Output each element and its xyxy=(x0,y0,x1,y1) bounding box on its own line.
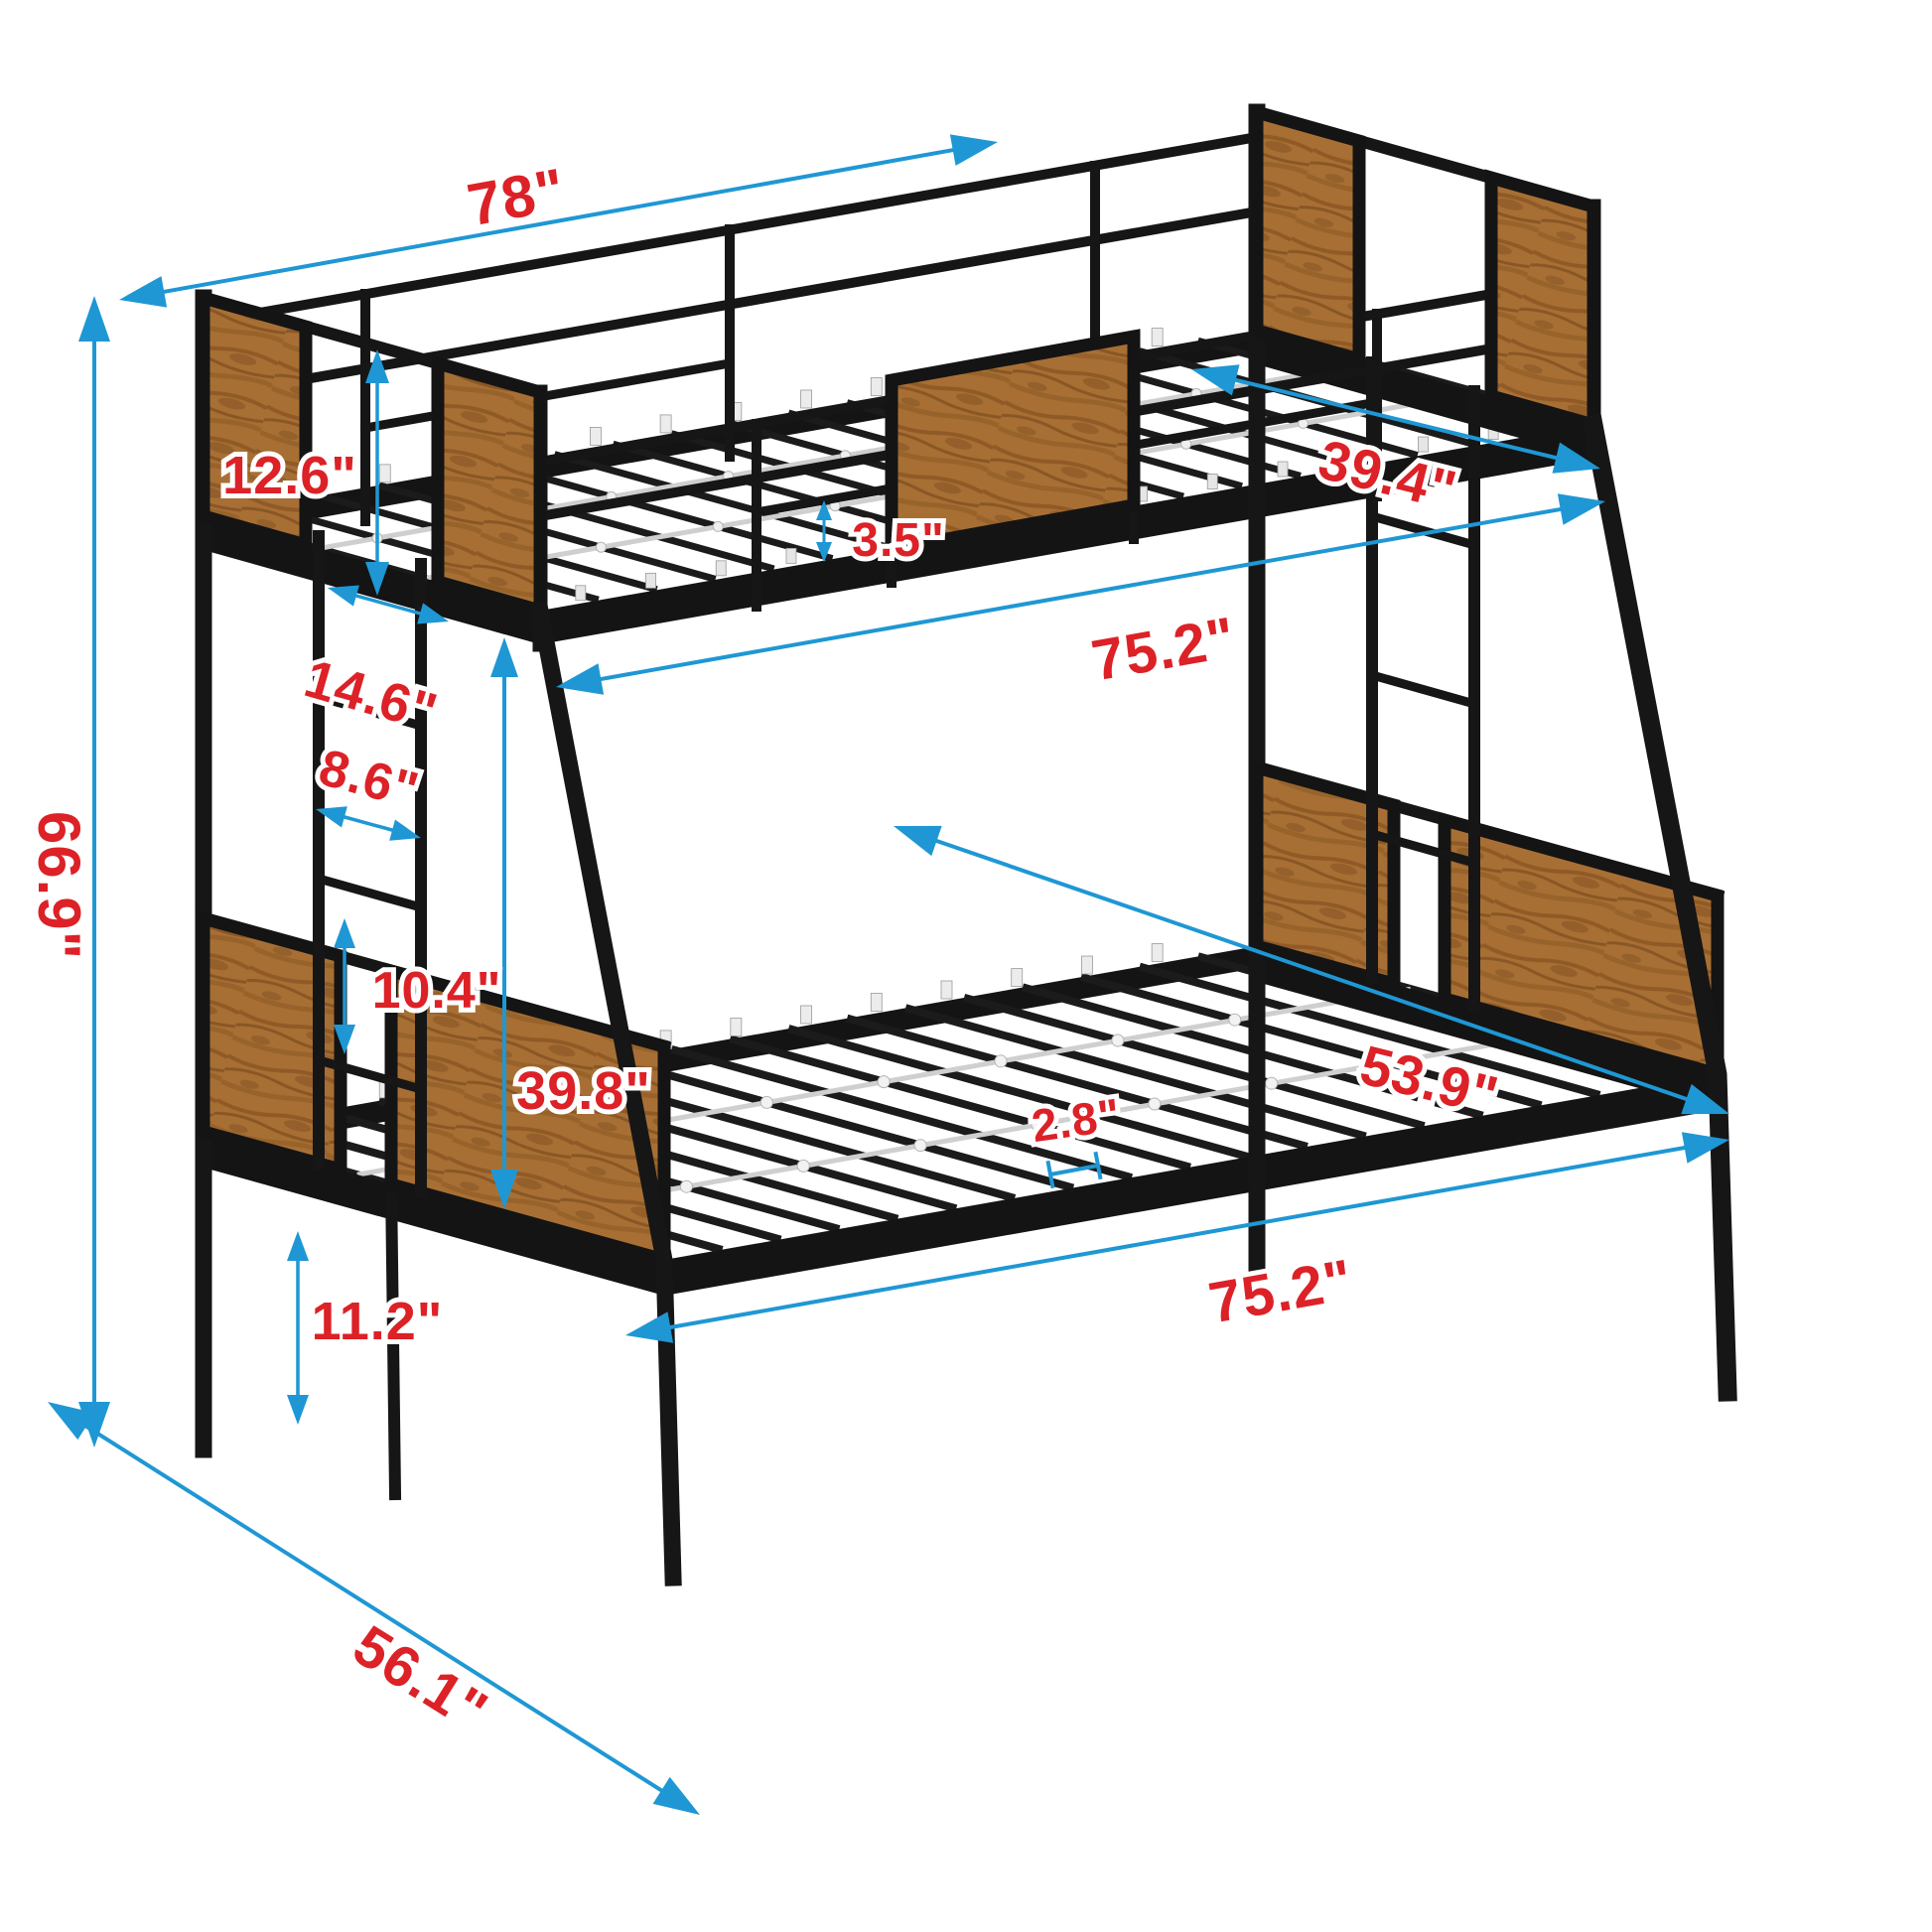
frame-member xyxy=(1278,462,1288,477)
bunk-bed-dimension-diagram: 78" 39.4" 12.6" 14.6" 8.6" 10.4" 66.9" 3… xyxy=(0,0,1932,1932)
frame-member xyxy=(680,1180,692,1192)
frame-member xyxy=(788,1029,1249,1157)
frame-member xyxy=(646,573,656,588)
frame-member xyxy=(731,1018,742,1035)
frame-member xyxy=(287,1231,309,1261)
frame-member xyxy=(1112,1035,1124,1046)
frame-member xyxy=(786,548,796,563)
ladder-rung xyxy=(319,879,421,907)
frame-member xyxy=(1266,1077,1278,1089)
frame-member xyxy=(119,276,167,307)
dim-arrow-overall-depth xyxy=(48,1402,700,1815)
upper-headboard-front-panel xyxy=(438,363,540,611)
frame-member xyxy=(797,1160,809,1172)
frame-member xyxy=(82,1424,665,1793)
foot-brace-bar xyxy=(1372,675,1474,704)
frame-member xyxy=(801,390,812,408)
frame-member xyxy=(716,561,726,576)
frame-member xyxy=(1095,1152,1100,1179)
dim-rung-spacing: 10.4" xyxy=(372,962,502,1020)
dim-guardrail-gap: 3.5" xyxy=(852,514,944,567)
frame-member xyxy=(871,993,882,1011)
frame-member xyxy=(1081,956,1092,974)
dim-overall-depth: 56.1" xyxy=(343,1613,499,1744)
frame-member xyxy=(941,981,952,999)
frame-member xyxy=(801,1006,812,1024)
dim-under-bed-height: 11.2" xyxy=(312,1292,444,1351)
frame-member xyxy=(878,1076,890,1088)
frame-member xyxy=(871,377,882,395)
frame-member xyxy=(625,1311,673,1343)
frame-member xyxy=(1152,944,1163,962)
upper-footboard-back-panel xyxy=(1257,112,1359,359)
frame-member xyxy=(342,816,395,831)
frame-member xyxy=(614,1059,1074,1187)
dim-top-bed-width: 39.4" xyxy=(1312,428,1463,522)
frame-member xyxy=(1229,1014,1241,1026)
frame-member xyxy=(653,1777,700,1815)
dim-top-sleeping-length: 75.2" xyxy=(1087,605,1240,693)
dim-panel-height: 12.6" xyxy=(222,446,357,505)
frame-member xyxy=(576,586,586,601)
dim-overall-height: 66.9" xyxy=(26,811,92,960)
frame-member xyxy=(596,542,606,552)
frame-member xyxy=(713,521,723,531)
frame-member xyxy=(287,1395,309,1425)
frame-member xyxy=(590,427,601,445)
upper-headboard-back-panel xyxy=(204,298,306,545)
frame-member xyxy=(379,465,390,483)
frame-member xyxy=(1207,474,1217,488)
frame-member xyxy=(1152,329,1163,346)
frame-member xyxy=(914,1140,926,1152)
frame-member xyxy=(78,296,110,342)
frame-member xyxy=(660,415,671,433)
frame-member xyxy=(1012,969,1023,987)
frame-member xyxy=(950,134,998,165)
frame-member xyxy=(905,1008,1366,1136)
frame-member xyxy=(334,918,355,948)
upper-footboard-front-panel xyxy=(1491,178,1593,425)
frame-member xyxy=(328,585,359,606)
frame-member xyxy=(730,1038,1190,1167)
frame-member xyxy=(995,1055,1007,1067)
dim-arrow-under-bed-height xyxy=(287,1231,309,1425)
bunk-bed-diagram-canvas: 78" 39.4" 12.6" 14.6" 8.6" 10.4" 66.9" 3… xyxy=(0,0,1932,1932)
dim-bunk-clearance: 39.8" xyxy=(516,1061,651,1121)
frame-member xyxy=(490,637,518,677)
frame-member xyxy=(894,826,942,856)
dim-overall-length: 78" xyxy=(463,156,571,238)
frame-member xyxy=(760,1096,772,1108)
dim-bottom-sleeping-length: 75.2" xyxy=(1204,1247,1357,1335)
frame-member xyxy=(1149,1098,1161,1110)
